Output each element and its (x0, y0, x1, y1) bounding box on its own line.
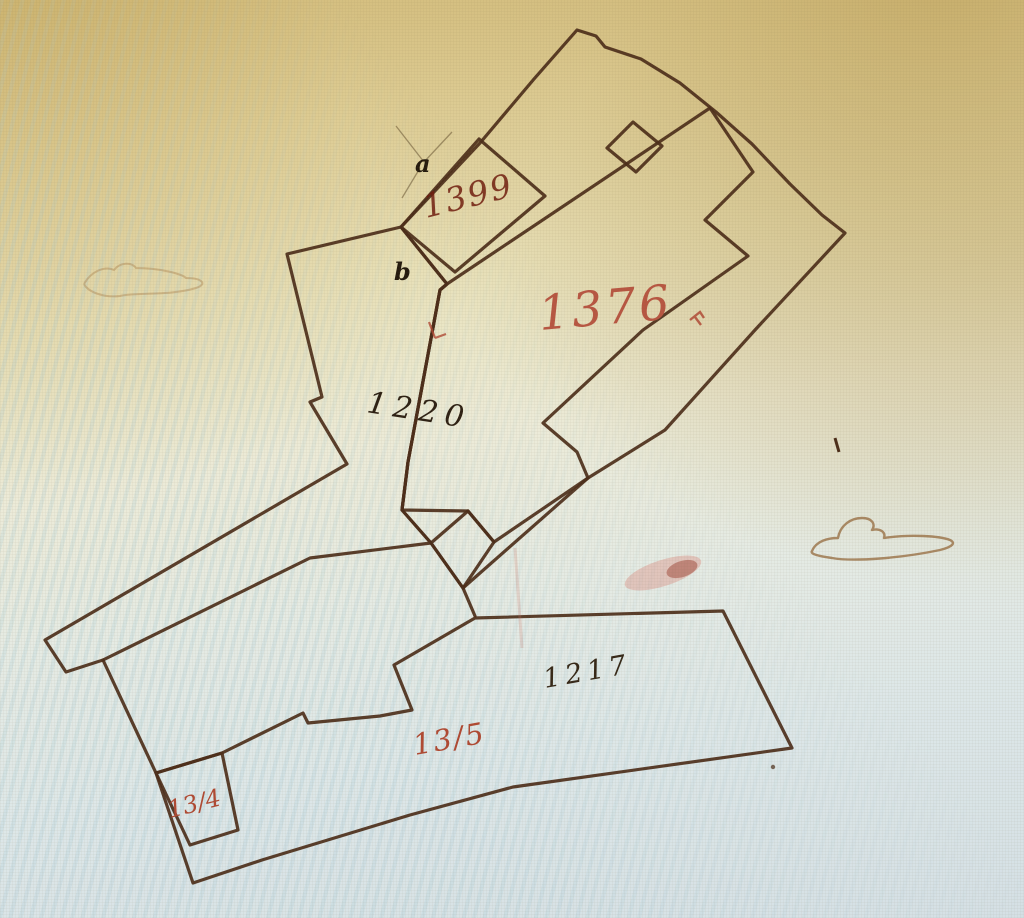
cadastral-map-photo: 1376 1399 1220 1217 13/5 13/4 a b (0, 0, 1024, 918)
screen-moire-overlay (0, 0, 1024, 918)
